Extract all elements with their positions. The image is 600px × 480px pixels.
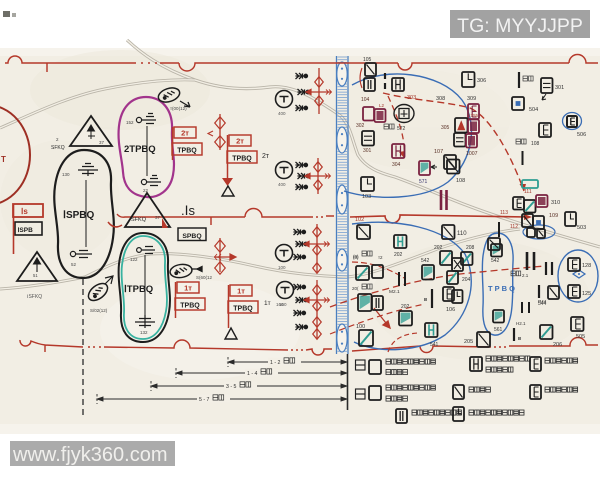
svg-text:1т: 1т <box>237 287 245 296</box>
svg-text:1 - 2: 1 - 2 <box>270 360 280 366</box>
svg-text:208: 208 <box>466 245 475 251</box>
svg-text:5 - 7: 5 - 7 <box>199 397 209 403</box>
svg-text:108: 108 <box>456 178 465 184</box>
svg-text:TPBQ: TPBQ <box>233 305 253 312</box>
svg-text:ⅠSPB: ⅠSPB <box>18 226 34 234</box>
svg-text:3 - 5: 3 - 5 <box>226 384 236 390</box>
svg-text:SFKQ: SFKQ <box>51 145 65 151</box>
svg-text:103: 103 <box>362 194 371 200</box>
svg-text:ⅠSFKQ: ⅠSFKQ <box>27 294 42 300</box>
svg-text:51: 51 <box>33 273 38 278</box>
svg-text:400: 400 <box>278 111 286 116</box>
svg-text:2т: 2т <box>181 129 189 138</box>
svg-text:106: 106 <box>446 307 455 313</box>
svg-text:309: 309 <box>467 96 476 102</box>
svg-text:113: 113 <box>500 210 508 216</box>
svg-text:SPBQ: SPBQ <box>182 233 201 240</box>
svg-text:152: 152 <box>126 120 134 125</box>
svg-text:205: 205 <box>464 339 473 345</box>
svg-text:2т: 2т <box>262 153 270 160</box>
svg-text:506: 506 <box>577 132 586 138</box>
svg-text:2т: 2т <box>236 137 244 146</box>
svg-text:542: 542 <box>491 258 500 264</box>
svg-text:37: 37 <box>155 215 161 220</box>
svg-text:20(: 20( <box>352 286 359 291</box>
svg-text:S(60(12: S(60(12 <box>196 275 213 280</box>
svg-text:М2.1: М2.1 <box>389 289 400 295</box>
svg-text:306: 306 <box>477 78 486 84</box>
svg-text:110: 110 <box>457 231 467 237</box>
svg-text:125: 125 <box>582 291 591 297</box>
svg-text:L2: L2 <box>379 103 385 108</box>
svg-text:310: 310 <box>551 200 560 206</box>
svg-text:SFKQ: SFKQ <box>131 217 147 223</box>
svg-text:202: 202 <box>434 245 443 251</box>
svg-text:ⅠTPBQ: ⅠTPBQ <box>124 284 153 295</box>
svg-text:109: 109 <box>549 213 558 219</box>
svg-text:301: 301 <box>363 148 372 154</box>
svg-text:104: 104 <box>361 97 370 103</box>
svg-text:S/02(12): S/02(12) <box>90 308 108 313</box>
svg-text:в: в <box>424 297 427 303</box>
svg-text:.Ⅰs: .Ⅰs <box>181 203 195 218</box>
svg-text:206: 206 <box>553 342 562 348</box>
svg-text:TPBQ: TPBQ <box>232 155 252 162</box>
svg-text:1 - 4: 1 - 4 <box>247 371 257 377</box>
svg-text:TPBQ: TPBQ <box>177 147 197 154</box>
svg-text:в: в <box>518 336 521 342</box>
svg-text:105: 105 <box>363 57 372 63</box>
svg-text:www.fjyk360.com: www.fjyk360.com <box>12 444 168 466</box>
svg-text:(0): (0) <box>353 255 359 260</box>
svg-text:304: 304 <box>392 162 401 168</box>
svg-text:202: 202 <box>394 252 403 258</box>
svg-text:2.1: 2.1 <box>522 273 529 278</box>
svg-text:1007: 1007 <box>466 151 478 157</box>
svg-text:37: 37 <box>99 140 105 145</box>
svg-text:400: 400 <box>278 182 286 187</box>
svg-text:130: 130 <box>62 172 70 177</box>
svg-text:T P B Q: T P B Q <box>488 284 515 293</box>
svg-text:561: 561 <box>494 327 503 333</box>
svg-text:1755: 1755 <box>468 113 479 118</box>
svg-text:т(00(12): т(00(12) <box>170 106 187 111</box>
svg-text:107: 107 <box>434 149 443 155</box>
svg-text:T: T <box>1 155 6 164</box>
svg-text:TG: MYYJJPP: TG: MYYJJPP <box>457 15 583 37</box>
svg-text:302: 302 <box>356 123 365 129</box>
svg-text:TPBQ: TPBQ <box>180 302 200 309</box>
svg-text:204: 204 <box>462 277 471 283</box>
svg-text:571: 571 <box>419 179 428 185</box>
svg-text:Ⅰs: Ⅰs <box>21 207 28 216</box>
svg-text:301: 301 <box>555 85 564 91</box>
svg-text:102: 102 <box>355 217 364 223</box>
svg-text:ⅠSPBQ: ⅠSPBQ <box>63 210 95 221</box>
svg-text:52: 52 <box>71 262 77 267</box>
svg-text:504: 504 <box>529 107 538 113</box>
svg-text:308: 308 <box>436 96 445 102</box>
svg-text:542: 542 <box>421 258 430 264</box>
svg-text:202: 202 <box>401 304 410 310</box>
svg-text:303: 303 <box>407 95 416 101</box>
svg-text:1т: 1т <box>264 300 271 307</box>
svg-text:108: 108 <box>531 141 540 147</box>
svg-text:572: 572 <box>397 126 406 132</box>
svg-text:111: 111 <box>524 189 532 195</box>
svg-text:100: 100 <box>356 324 365 330</box>
svg-text:541: 541 <box>430 342 439 348</box>
svg-text:505: 505 <box>576 334 585 340</box>
svg-text:305: 305 <box>441 125 450 131</box>
svg-text:1т: 1т <box>184 284 192 293</box>
svg-text:112: 112 <box>510 224 518 230</box>
svg-text:132: 132 <box>140 330 148 335</box>
svg-text:22: 22 <box>143 188 149 193</box>
svg-text:503: 503 <box>577 225 586 231</box>
svg-text:122: 122 <box>130 257 138 262</box>
svg-text:128: 128 <box>582 263 591 269</box>
svg-text:2TPBQ: 2TPBQ <box>124 144 156 155</box>
svg-text:Н2.1: Н2.1 <box>516 321 526 326</box>
svg-text:100: 100 <box>278 265 286 270</box>
svg-text:П44: П44 <box>538 299 547 304</box>
svg-text:т2: т2 <box>378 255 383 260</box>
svg-text:160: 160 <box>279 302 287 307</box>
